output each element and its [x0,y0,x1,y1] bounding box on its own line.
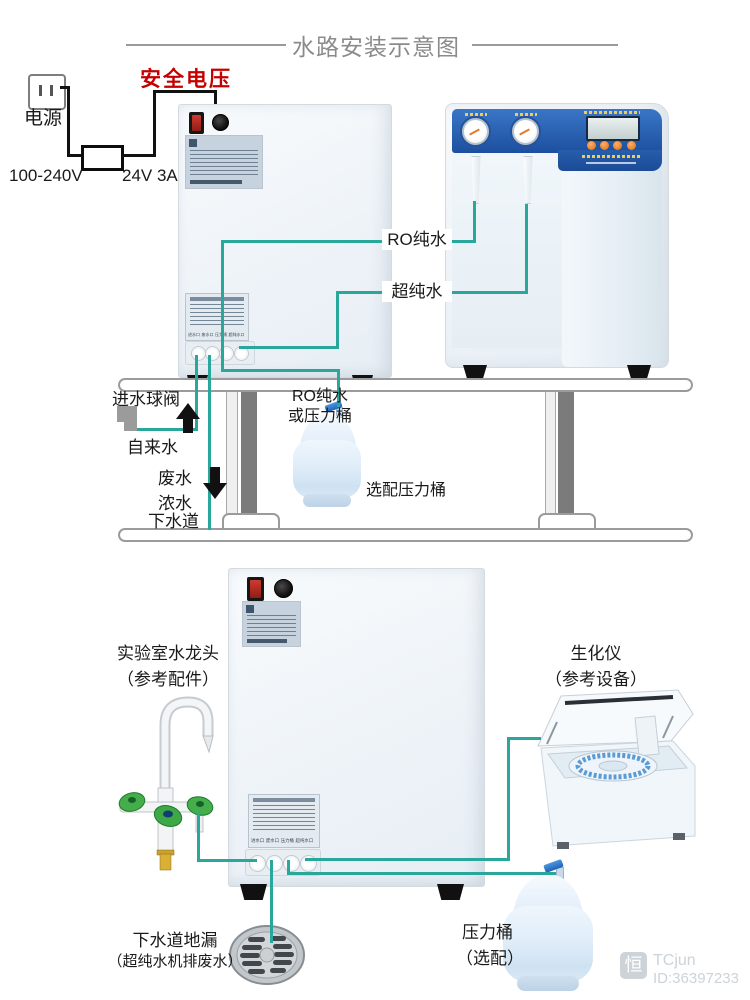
down-arrow-shaft [210,467,220,483]
bench-top [118,378,693,392]
purifier-back-view-bottom: 进水口废水口压力桶超纯水口 [228,568,485,887]
pipe-segment [221,369,340,372]
bench-leg [226,391,238,519]
pipe-segment [525,204,528,294]
power-source-label: 电源 [24,107,62,131]
watermark-name: TCjun [653,952,739,970]
bench-leg [241,391,257,517]
up-arrow-shaft [183,418,193,433]
pipe-segment [507,737,510,861]
pressure-tank-bottom [500,862,596,1000]
sewer-label: 下水道 [148,511,199,532]
floor-line [118,528,693,542]
power-socket-icon [28,74,66,110]
purifier-front-view [445,103,669,368]
gauge1-caption [465,113,487,116]
faucet-note: （参考配件） [100,669,236,690]
tap-water-label: 自来水 [127,437,178,458]
water-route-installation-diagram: 水路安装示意图 电源 100-240V 24V 3A 安全电压 [0,0,750,1000]
spec-sticker [242,601,301,647]
title-rule-left [126,44,286,46]
spec-sticker [185,135,263,189]
pressure-gauge [512,118,539,145]
power-connector [274,579,293,598]
machine-foot [437,884,464,900]
pipe-segment [473,201,476,243]
lcd-display [586,116,640,141]
pressure-gauge [462,118,489,145]
down-arrow-icon [203,483,227,499]
bench-leg [558,391,574,517]
watermark-logo: 恒 [620,952,647,979]
port-labels: 进水口废水口压力桶超纯水口 [251,837,313,843]
gauge2-caption [515,113,537,116]
ro-water-line-label: RO纯水 [382,229,452,250]
page-title: 水路安装示意图 [290,33,462,62]
lcd-caption [584,111,640,114]
pipe-segment [208,355,211,530]
output-voltage-label: 24V 3A [122,165,178,186]
inlet-ball-valve-icon [117,406,143,434]
title-rule-right [472,44,618,46]
pipe-segment [270,860,273,943]
faucet-title: 实验室水龙头 [100,643,236,664]
watermark: 恒 TCjun ID:36397233 [620,952,739,988]
tank-title: 压力桶 [462,922,513,943]
watermark-id: ID:36397233 [653,970,739,987]
control-panel-lower [558,150,662,171]
panel-button [587,141,596,150]
panel-button [613,141,622,150]
pipe-segment [197,859,257,862]
pipe-segment [336,291,339,349]
biochemical-analyzer [523,686,708,861]
machine-foot [627,365,651,378]
power-adapter [81,145,124,171]
pipe-segment [239,346,339,349]
bench-leg [545,391,556,519]
port-instruction-sticker: 进水口废水口压力桶超纯水口 [248,794,320,848]
port-instruction-sticker: 进水口废水口压力桶超纯水口 [185,293,249,341]
pipe-segment [221,240,224,355]
pipe-segment [305,858,510,861]
optional-tank-label: 选配压力桶 [366,481,446,501]
machine-foot [463,365,487,378]
panel-button [627,141,636,150]
input-voltage-label: 100-240V [9,165,83,186]
machine-right-pillar [562,153,662,367]
dispenser-bay [452,153,563,348]
pipe-segment [197,812,200,862]
power-connector [212,114,229,131]
up-arrow-icon [176,403,200,419]
pipe-segment [195,355,198,431]
safe-voltage-label: 安全电压 [140,67,232,93]
analyzer-title: 生化仪 [528,643,664,664]
waste-water-label: 废水 [158,468,192,489]
drain-note: （超纯水机排废水） [90,953,260,972]
panel-button [600,141,609,150]
pipe-segment [507,737,541,740]
ro-or-tank-label: RO纯水 或压力桶 [270,387,370,427]
pipe-segment [287,872,556,875]
lab-faucet [108,690,228,872]
drain-title: 下水道地漏 [108,930,242,951]
power-switch [247,577,264,601]
port-labels: 进水口废水口压力桶超纯水口 [188,332,245,338]
tank-note: （选配） [456,948,524,969]
machine-foot [240,884,267,900]
ultrapure-line-label: 超纯水 [382,281,452,302]
power-switch [189,112,204,134]
